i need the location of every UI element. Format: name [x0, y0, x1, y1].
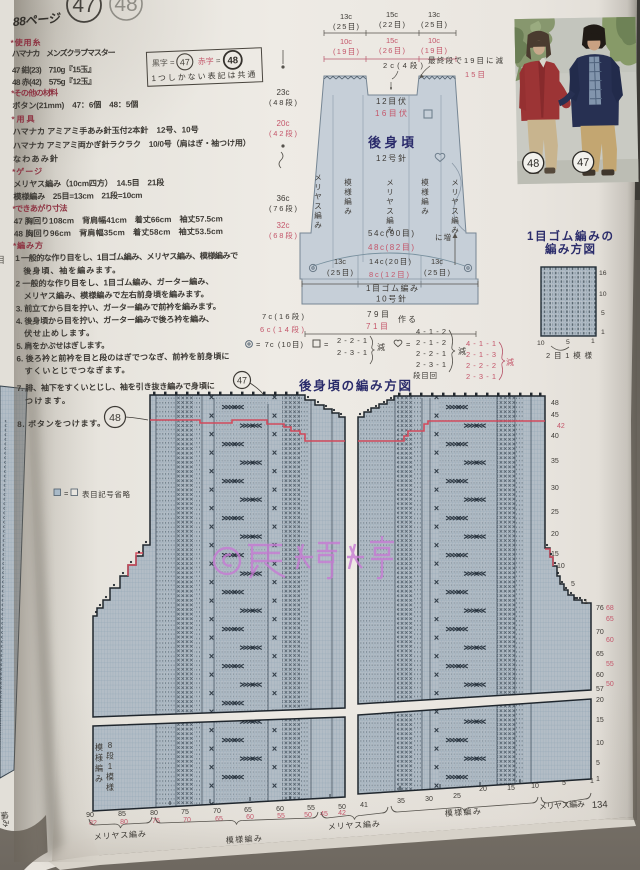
svg-text:1: 1 [591, 338, 595, 345]
svg-text:68: 68 [606, 605, 614, 612]
svg-text:15目: 15目 [465, 70, 485, 79]
svg-text:80: 80 [120, 819, 128, 826]
svg-text:60: 60 [596, 672, 604, 679]
svg-text:減: 減 [377, 342, 385, 352]
svg-text:65: 65 [596, 651, 604, 658]
svg-text:13c: 13c [428, 10, 440, 19]
svg-text:表目記号省略: 表目記号省略 [82, 489, 131, 499]
svg-text:2目1模様: 2目1模様 [546, 350, 593, 360]
svg-text:60: 60 [606, 637, 614, 644]
svg-text:(25目): (25目) [424, 268, 451, 277]
svg-text:134: 134 [592, 799, 608, 811]
svg-text:1: 1 [590, 778, 594, 785]
svg-text:=: = [406, 340, 411, 349]
svg-text:10: 10 [596, 740, 604, 747]
svg-text:に減: に減 [486, 55, 504, 65]
svg-text:(19目): (19目) [421, 46, 448, 55]
svg-text:模様編み 25目=13cm 21段=10cm: 模様編み 25目=13cm 21段=10cm [13, 190, 142, 202]
svg-text:20: 20 [551, 531, 559, 538]
svg-text:14c(20目): 14c(20目) [369, 257, 412, 266]
svg-text:後身頃の編み方図: 後身頃の編み方図 [299, 378, 411, 393]
svg-text:13c: 13c [334, 257, 346, 266]
svg-text:35: 35 [397, 798, 405, 805]
svg-text:後身頃: 後身頃 [368, 135, 415, 150]
svg-text:(25目): (25目) [421, 20, 448, 29]
svg-text:25: 25 [453, 793, 461, 800]
svg-text:*できあがり寸法: *できあがり寸法 [13, 203, 68, 214]
svg-text:15: 15 [596, 717, 604, 724]
svg-text:減: 減 [506, 357, 514, 367]
svg-text:48: 48 [551, 400, 559, 407]
svg-text:48: 48 [527, 158, 539, 170]
svg-text:=: = [64, 489, 69, 498]
svg-text:13c: 13c [431, 257, 443, 266]
svg-text:5: 5 [562, 780, 566, 787]
svg-text:40: 40 [551, 433, 559, 440]
svg-text:48: 48 [114, 0, 137, 16]
svg-text:47: 47 [180, 57, 190, 67]
svg-text:90: 90 [86, 812, 94, 819]
svg-text:75: 75 [152, 818, 160, 825]
svg-text:5: 5 [596, 760, 600, 767]
svg-text:つけます。: つけます。 [25, 396, 70, 406]
svg-text:=: = [324, 340, 329, 349]
svg-text:25: 25 [551, 509, 559, 516]
svg-text:5: 5 [566, 339, 570, 346]
svg-text:79目: 79目 [367, 310, 389, 319]
svg-text:15: 15 [551, 551, 559, 558]
svg-text:30: 30 [551, 485, 559, 492]
svg-text:= 7c (10目): = 7c (10目) [256, 340, 304, 349]
svg-text:55: 55 [606, 661, 614, 668]
svg-text:減: 減 [458, 346, 466, 356]
svg-text:15: 15 [507, 785, 515, 792]
svg-text:5: 5 [571, 581, 575, 588]
svg-text:47: 47 [237, 376, 247, 386]
svg-text:目: 目 [0, 255, 5, 265]
svg-text:71目: 71目 [366, 322, 388, 331]
svg-text:70: 70 [183, 817, 191, 824]
svg-text:55: 55 [307, 805, 315, 812]
svg-text:=: = [216, 56, 221, 65]
svg-text:45: 45 [551, 412, 559, 419]
svg-text:32c: 32c [277, 221, 290, 230]
svg-text:19目: 19目 [464, 56, 484, 65]
svg-text:82: 82 [89, 820, 97, 827]
svg-text:35: 35 [551, 458, 559, 465]
svg-text:15c: 15c [386, 10, 398, 19]
svg-text:10c: 10c [428, 36, 440, 45]
svg-text:65: 65 [244, 807, 252, 814]
svg-text:13c: 13c [340, 12, 352, 21]
svg-text:*ゲージ: *ゲージ [12, 166, 42, 176]
svg-text:(22目): (22目) [379, 20, 406, 29]
svg-text:20c: 20c [277, 119, 290, 128]
svg-text:(26目): (26目) [379, 46, 406, 55]
svg-text:赤字: 赤字 [198, 56, 214, 67]
svg-text:41: 41 [360, 802, 368, 809]
svg-text:42: 42 [557, 423, 565, 430]
svg-text:ハマナカ メンズクラブマスター: ハマナカ メンズクラブマスター [12, 47, 116, 58]
svg-text:最終段で: 最終段で [428, 55, 462, 65]
svg-text:5: 5 [601, 310, 605, 317]
svg-text:76: 76 [596, 605, 604, 612]
svg-text:後身頃、袖を編みます。: 後身頃、袖を編みます。 [23, 265, 120, 276]
svg-text:70: 70 [596, 629, 604, 636]
svg-text:模様編み: 模様編み [421, 177, 429, 216]
svg-text:60: 60 [276, 806, 284, 813]
svg-text:47 紺(23) 710g『15玉』: 47 紺(23) 710g『15玉』 [12, 64, 96, 75]
svg-text:10: 10 [531, 783, 539, 790]
svg-text:57: 57 [596, 686, 604, 693]
svg-text:*その他の材料: *その他の材料 [11, 87, 58, 98]
svg-text:*編み方: *編み方 [13, 240, 43, 250]
svg-text:10: 10 [537, 340, 545, 347]
svg-text:1目ゴム編み: 1目ゴム編み [366, 283, 418, 293]
svg-text:16: 16 [599, 270, 607, 277]
svg-text:47: 47 [72, 0, 95, 17]
svg-text:模様編み: 模様編み [344, 177, 352, 216]
svg-text:(25目): (25目) [327, 268, 354, 277]
svg-text:20: 20 [596, 697, 604, 704]
svg-text:ボタン(21mm) 47：6個 48：5個: ボタン(21mm) 47：6個 48：5個 [12, 99, 138, 111]
svg-text:65: 65 [606, 616, 614, 623]
svg-text:に増: に増 [435, 232, 451, 242]
svg-text:なわあみ針: なわあみ針 [13, 153, 58, 164]
svg-text:20: 20 [479, 786, 487, 793]
svg-text:75: 75 [181, 809, 189, 816]
svg-text:10c: 10c [340, 37, 352, 46]
svg-text:黒字: 黒字 [152, 57, 168, 68]
svg-text:65: 65 [215, 816, 223, 823]
svg-text:15c: 15c [386, 36, 398, 45]
svg-text:メリヤス編み: メリヤス編み [451, 178, 459, 235]
svg-text:編み方図: 編み方図 [545, 242, 595, 256]
svg-text:47: 47 [577, 157, 589, 169]
svg-text:*使用糸: *使用糸 [11, 37, 41, 47]
svg-text:50: 50 [606, 681, 614, 688]
svg-text:85: 85 [118, 811, 126, 818]
svg-text:48: 48 [227, 55, 238, 66]
svg-text:80: 80 [150, 810, 158, 817]
svg-text:23c: 23c [277, 88, 290, 97]
svg-text:48 赤(42) 575g『12玉』: 48 赤(42) 575g『12玉』 [12, 76, 96, 87]
svg-text:36c: 36c [277, 194, 290, 203]
svg-text:8. ボタンをつけます。: 8. ボタンをつけます。 [17, 418, 105, 429]
svg-text:1: 1 [601, 329, 605, 336]
svg-text:すくいとじでつなぎます。: すくいとじでつなぎます。 [25, 365, 130, 376]
svg-text:30: 30 [425, 796, 433, 803]
svg-text:10: 10 [599, 291, 607, 298]
svg-text:=: = [170, 58, 175, 67]
svg-text:メリヤス編み: メリヤス編み [314, 173, 322, 230]
svg-text:1: 1 [596, 776, 600, 783]
svg-text:メリヤス編み: メリヤス編み [386, 178, 394, 235]
svg-text:(19目): (19目) [333, 47, 360, 56]
svg-text:メリヤス編み（10cm四方） 14.5目 21段: メリヤス編み（10cm四方） 14.5目 21段 [13, 177, 165, 189]
svg-text:48c(82目): 48c(82目) [368, 243, 414, 252]
svg-text:54c(90目): 54c(90目) [368, 229, 414, 238]
svg-text:伏せ止めします。: 伏せ止めします。 [24, 328, 94, 339]
svg-text:5. 肩をかぶせはぎします。: 5. 肩をかぶせはぎします。 [16, 340, 109, 351]
svg-text:(25目): (25目) [333, 22, 360, 31]
svg-text:70: 70 [213, 808, 221, 815]
svg-text:48: 48 [109, 412, 121, 424]
svg-text:段目回: 段目回 [413, 370, 437, 380]
svg-text:1: 1 [584, 599, 588, 606]
svg-text:10: 10 [557, 563, 565, 570]
